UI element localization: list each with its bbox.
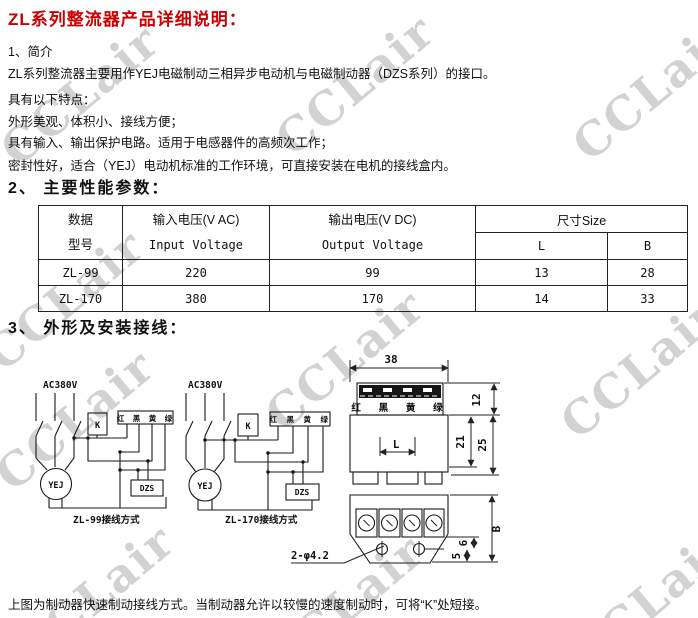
size-b-cell: 33 [608,286,688,312]
col-header-input-en: Input Voltage [123,233,269,258]
col-header-output: 输出电压(V DC) Output Voltage [270,206,476,260]
product-spec-page: CCLair CCLair CCLair CCLair CCLair CCLai… [0,0,698,618]
table-row-zl99: ZL-99 220 99 13 28 [39,260,688,286]
dim-length-label: L [393,438,400,451]
col-header-output-cn: 输出电压(V DC) [270,208,475,233]
dim-top-height: 12 [470,393,483,406]
model-cell: ZL-99 [39,260,123,286]
col-header-input: 输入电压(V AC) Input Voltage [123,206,270,260]
zl99-brake-label: DZS [140,484,155,493]
mounting-feet-hatch [353,472,442,484]
input-voltage-cell: 380 [123,286,270,312]
size-l-cell: 14 [476,286,608,312]
dim-mounting-holes: 2-φ4.2 [291,550,329,562]
zl99-junction-dots [72,436,149,471]
dim-hole-offset: 6 [457,539,470,546]
zl170-supply-label: AC380V [188,380,223,391]
zl170-k-label: K [245,422,251,432]
footer-note: 上图为制动器快速制动接线方式。当制动器允许以较慢的速度制动时，可将“K”处短接。 [8,594,487,613]
output-voltage-cell: 99 [270,260,476,286]
zl170-wiring-diagram: AC380V YEJ K 红 黑 黄 绿 [186,380,331,526]
intro-description: ZL系列整流器主要用作YEJ电磁制动三相异步电动机与电磁制动器（DZS系列）的接… [8,63,496,82]
feature-item: 密封性好，适合（YEJ）电动机标准的工作环境，可直接安装在电机的接线盒内。 [8,155,456,174]
zl99-terminal-colors: 红 黑 黄 绿 [117,413,175,423]
wiring-and-outline-drawing: AC380V YEJ K 红 黑 黄 绿 [0,340,520,585]
document-content: ZL系列整流器产品详细说明： 1、简介 ZL系列整流器主要用作YEJ电磁制动三相… [0,0,698,618]
col-header-size-l: L [476,233,608,260]
col-header-size: 尺寸Size [476,206,688,233]
bottom-view-outline [350,495,448,563]
col-header-model: 数据 型号 [39,206,123,260]
feature-item: 具有输入、输出保护电路。适用于电感器件的高频次工作； [8,132,333,151]
zl170-junction-dots [203,438,304,473]
dim-body-inner-height: 21 [454,435,467,449]
dim-body-height: 25 [476,438,489,451]
zl99-motor-label: YEJ [48,481,63,491]
section2-heading: 2、 主要性能参数： [8,174,169,198]
zl99-wiring-diagram: AC380V YEJ K 红 黑 黄 绿 [36,380,174,526]
col-header-output-en: Output Voltage [270,233,475,258]
col-header-model-cn: 数据 [39,208,122,233]
zl99-k-label: K [95,421,101,431]
size-l-cell: 13 [476,260,608,286]
section3-heading: 3、 外形及安装接线： [8,314,187,338]
section1-heading: 1、简介 [8,41,52,60]
dim-hole-bottom: 5 [450,553,463,560]
col-header-size-b: B [608,233,688,260]
zl170-caption: ZL-170接线方式 [225,514,298,526]
input-voltage-cell: 220 [123,260,270,286]
zl99-caption: ZL-99接线方式 [73,514,140,526]
dim-top-width: 38 [384,353,397,366]
features-intro: 具有以下特点： [8,89,96,108]
col-header-input-cn: 输入电压(V AC) [123,208,269,233]
performance-table: 数据 型号 输入电压(V AC) Input Voltage 输出电压(V DC… [38,205,688,312]
dim-total-height: B [490,525,503,532]
zl170-terminal-colors: 红 黑 黄 绿 [269,414,330,424]
output-voltage-cell: 170 [270,286,476,312]
terminal-screws [356,509,444,537]
zl170-brake-label: DZS [295,488,310,497]
zl170-motor-label: YEJ [197,482,212,492]
page-title: ZL系列整流器产品详细说明： [8,5,247,30]
feature-item: 外形美观、体积小、接线方便； [8,111,183,130]
col-header-model-cn2: 型号 [39,233,122,258]
size-b-cell: 28 [608,260,688,286]
table-row-zl170: ZL-170 380 170 14 33 [39,286,688,312]
outline-terminal-colors: 红 黑 黄 绿 [351,402,448,414]
model-cell: ZL-170 [39,286,123,312]
zl99-supply-label: AC380V [43,380,78,391]
